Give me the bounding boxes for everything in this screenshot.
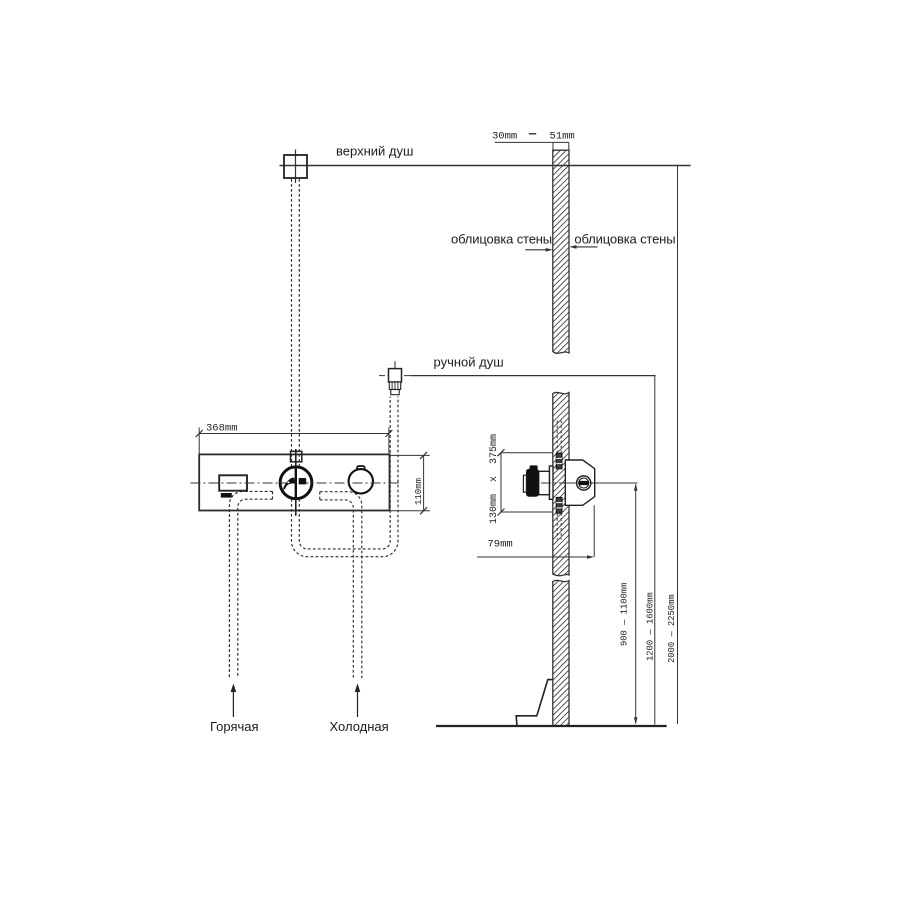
svg-text:51mm: 51mm bbox=[550, 131, 575, 143]
svg-text:368mm: 368mm bbox=[206, 423, 238, 435]
svg-text:110mm: 110mm bbox=[414, 478, 424, 505]
svg-text:облицовка стены: облицовка стены bbox=[574, 231, 675, 246]
svg-text:ручной душ: ручной душ bbox=[434, 354, 504, 369]
svg-text:верхний душ: верхний душ bbox=[336, 144, 413, 159]
svg-text:2000 — 2250mm: 2000 — 2250mm bbox=[667, 594, 677, 663]
svg-text:Холодная: Холодная bbox=[330, 719, 389, 734]
svg-text:30mm: 30mm bbox=[492, 131, 517, 143]
svg-text:130mm x 375mm: 130mm x 375mm bbox=[489, 434, 500, 524]
svg-text:Горячая: Горячая bbox=[210, 719, 259, 734]
svg-text:900 — 1100mm: 900 — 1100mm bbox=[620, 583, 630, 646]
svg-text:1200 — 1600mm: 1200 — 1600mm bbox=[645, 592, 655, 661]
svg-text:79mm: 79mm bbox=[488, 539, 513, 551]
svg-text:облицовка стены: облицовка стены bbox=[451, 231, 552, 246]
